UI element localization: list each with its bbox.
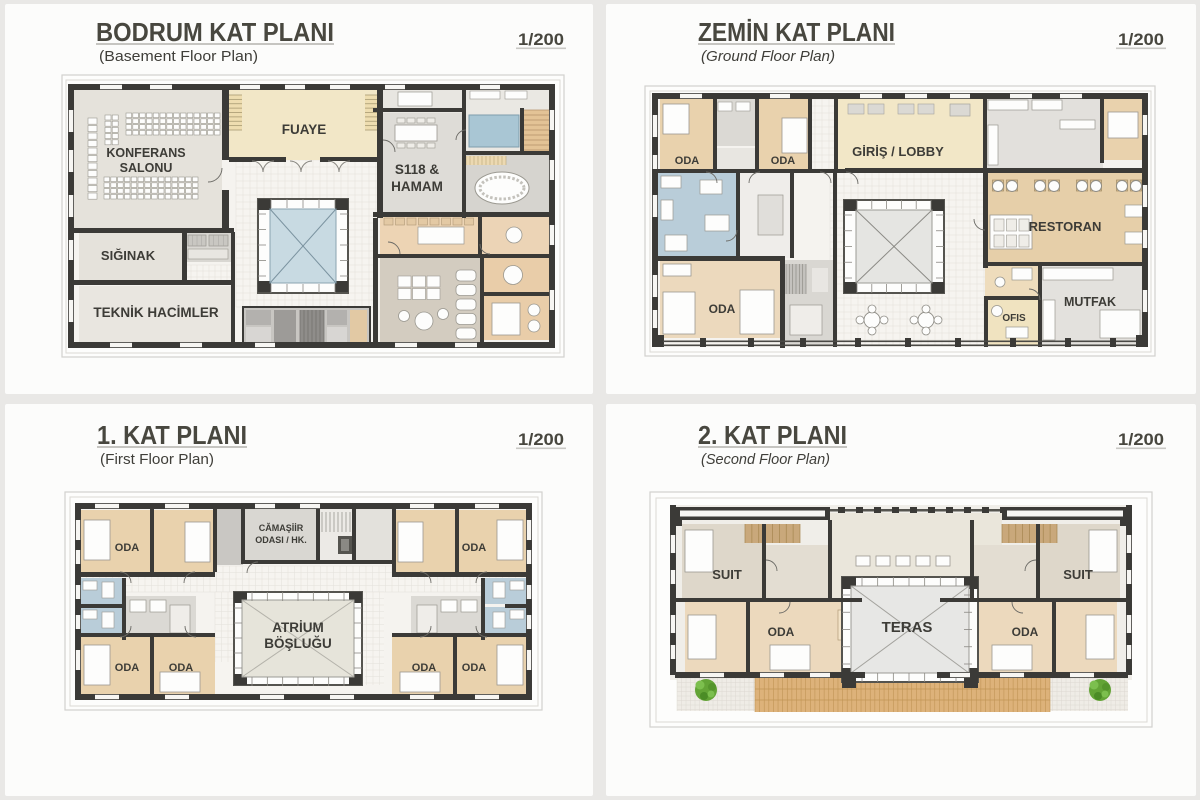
svg-text:ODA: ODA	[412, 662, 437, 674]
svg-text:BODRUM KAT PLANI: BODRUM KAT PLANI	[96, 17, 334, 47]
svg-text:ODASI / HK.: ODASI / HK.	[255, 535, 307, 545]
svg-text:(Ground Floor Plan): (Ground Floor Plan)	[701, 48, 835, 65]
svg-text:TERAS: TERAS	[882, 619, 933, 636]
svg-text:FUAYE: FUAYE	[282, 122, 327, 137]
svg-text:ODA: ODA	[115, 542, 140, 554]
svg-text:1. KAT PLANI: 1. KAT PLANI	[97, 420, 247, 450]
svg-text:ODA: ODA	[169, 662, 194, 674]
svg-text:(Second Floor Plan): (Second Floor Plan)	[701, 451, 830, 468]
svg-text:CĂMAŞİİR: CĂMAŞİİR	[259, 523, 304, 533]
svg-text:ODA: ODA	[115, 662, 140, 674]
svg-text:ATRİUM: ATRİUM	[272, 620, 324, 635]
svg-text:GİRİŞ / LOBBY: GİRİŞ / LOBBY	[852, 144, 944, 159]
svg-text:MUTFAK: MUTFAK	[1064, 295, 1116, 309]
svg-text:ZEMİN KAT PLANI: ZEMİN KAT PLANI	[698, 17, 895, 47]
svg-text:RESTORAN: RESTORAN	[1029, 219, 1102, 234]
svg-text:KONFERANS: KONFERANS	[106, 146, 185, 160]
svg-text:TEKNİK HACİMLER: TEKNİK HACİMLER	[93, 305, 218, 320]
svg-text:ODA: ODA	[771, 155, 796, 167]
svg-text:ODA: ODA	[1012, 625, 1039, 639]
svg-text:OFIS: OFIS	[1002, 313, 1026, 324]
svg-text:(Basement Floor Plan): (Basement Floor Plan)	[99, 48, 258, 65]
svg-text:2. KAT PLANI: 2. KAT PLANI	[698, 420, 847, 450]
svg-text:ODA: ODA	[768, 625, 795, 639]
svg-text:1/200: 1/200	[518, 430, 564, 449]
svg-text:SALONU: SALONU	[120, 161, 173, 175]
svg-text:(First Floor Plan): (First Floor Plan)	[100, 451, 214, 468]
svg-text:ODA: ODA	[462, 542, 487, 554]
svg-text:ODA: ODA	[709, 302, 736, 316]
svg-text:S118 &: S118 &	[395, 162, 440, 177]
svg-text:1/200: 1/200	[1118, 430, 1164, 449]
svg-text:BÖŞLUĞU: BÖŞLUĞU	[264, 636, 332, 651]
svg-text:SUIT: SUIT	[1063, 567, 1093, 582]
svg-text:1/200: 1/200	[1118, 30, 1164, 49]
svg-text:ODA: ODA	[675, 155, 700, 167]
svg-text:HAMAM: HAMAM	[391, 179, 443, 194]
svg-text:1/200: 1/200	[518, 30, 564, 49]
svg-text:SUIT: SUIT	[712, 567, 742, 582]
svg-text:SIĞINAK: SIĞINAK	[101, 248, 156, 263]
svg-text:ODA: ODA	[462, 662, 487, 674]
